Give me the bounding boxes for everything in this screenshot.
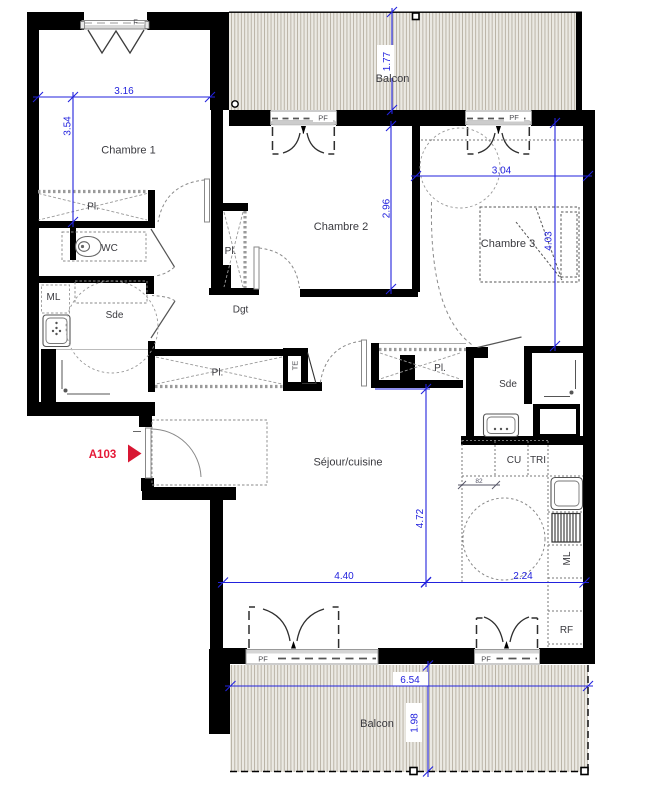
svg-text:Pl.: Pl. [225,246,237,257]
svg-text:Pl.: Pl. [212,368,224,379]
svg-text:4.72: 4.72 [415,508,426,528]
svg-text:2.24: 2.24 [513,571,533,582]
svg-text:PF: PF [318,114,328,123]
svg-text:1.77: 1.77 [382,51,393,71]
svg-text:4.40: 4.40 [334,571,354,582]
svg-text:Dgt: Dgt [233,305,249,316]
svg-text:Chambre 2: Chambre 2 [314,221,368,233]
svg-text:RF: RF [560,625,573,636]
svg-text:4.03: 4.03 [544,231,555,251]
svg-text:TE: TE [291,361,300,371]
svg-text:3.16: 3.16 [114,86,134,97]
svg-text:Pl.: Pl. [434,363,446,374]
svg-text:F: F [133,18,138,27]
svg-text:PF: PF [509,113,519,122]
svg-text:2.96: 2.96 [382,198,393,218]
svg-text:ML: ML [47,292,61,303]
svg-text:3.54: 3.54 [63,116,74,136]
svg-text:PF: PF [258,655,268,664]
svg-text:Pl.: Pl. [87,202,99,213]
svg-text:82: 82 [475,478,483,485]
svg-text:6.54: 6.54 [400,675,420,686]
svg-text:CU: CU [507,455,521,466]
svg-text:Sde: Sde [499,379,517,390]
svg-text:Chambre 3: Chambre 3 [481,238,535,250]
svg-text:Sde: Sde [106,310,124,321]
svg-text:ML: ML [562,551,573,565]
svg-text:Séjour/cuisine: Séjour/cuisine [313,457,382,469]
svg-text:Chambre 1: Chambre 1 [101,145,155,157]
svg-text:Balcon: Balcon [360,718,394,730]
svg-text:TRI: TRI [530,455,546,466]
svg-text:Balcon: Balcon [376,73,410,85]
svg-text:1.98: 1.98 [410,713,421,733]
svg-text:WC: WC [101,243,118,254]
svg-text:A103: A103 [89,449,117,461]
svg-text:3.04: 3.04 [492,166,512,177]
svg-text:PF: PF [481,655,491,664]
